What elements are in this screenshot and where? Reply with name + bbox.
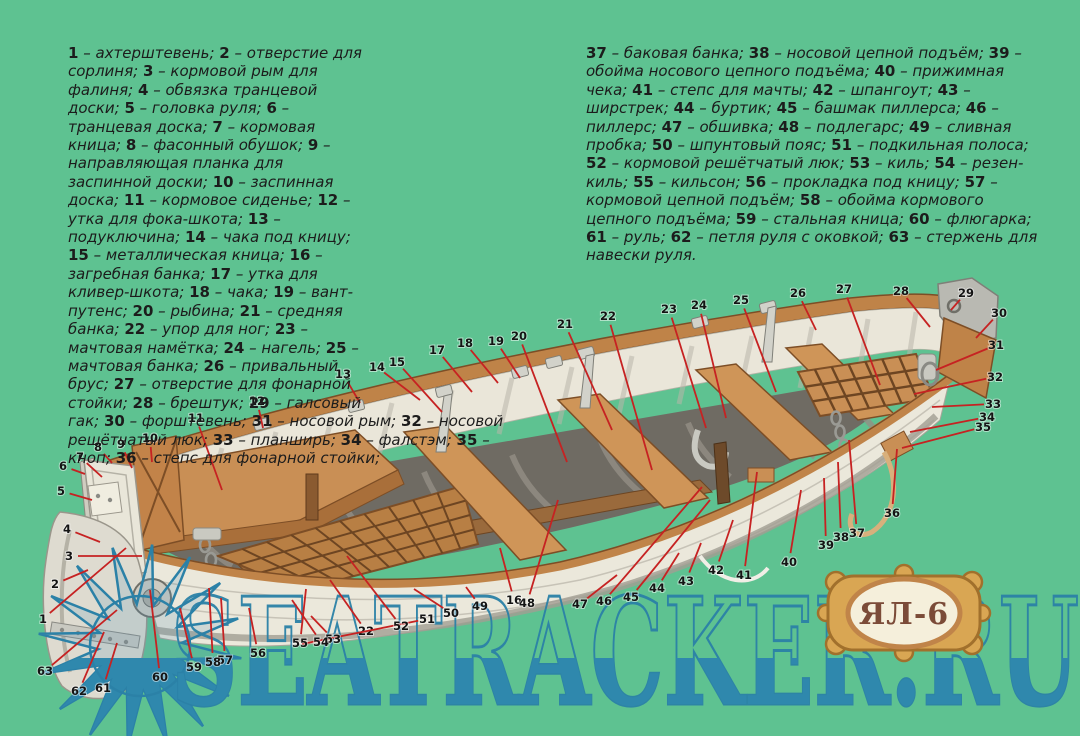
badge: ЯЛ-6 (818, 565, 990, 661)
legend-item-number: 23 (275, 320, 296, 338)
callout-number: 4 (63, 522, 71, 536)
callout-number: 35 (975, 420, 991, 434)
legend-item-number: 4 (138, 81, 148, 99)
callout-number: 22 (600, 309, 616, 323)
legend-item-number: 44 (674, 99, 695, 117)
callout-number: 39 (818, 538, 834, 552)
legend-item-number: 2 (219, 44, 229, 62)
legend-item-number: 18 (189, 283, 210, 301)
legend-item-number: 7 (212, 118, 222, 136)
callout-number: 54 (313, 635, 329, 649)
legend-item-number: 57 (965, 173, 986, 191)
legend-item-number: 32 (401, 412, 422, 430)
legend-item-number: 62 (671, 228, 692, 246)
legend-column-2: 37 – баковая банка; 38 – носовой цепной … (586, 44, 1048, 265)
legend-item-number: 38 (749, 44, 770, 62)
legend-item-number: 28 (133, 394, 154, 412)
callout-number: 26 (790, 286, 806, 300)
legend-item-number: 17 (210, 265, 231, 283)
legend-item-number: 11 (124, 191, 145, 209)
legend-item-number: 31 (252, 412, 273, 430)
legend-item-number: 63 (888, 228, 909, 246)
callout-number: 28 (893, 284, 909, 298)
callout-number: 50 (443, 606, 459, 620)
callout-number: 60 (152, 670, 168, 684)
legend-item-number: 39 (989, 44, 1010, 62)
callout-number: 58 (205, 655, 221, 669)
callout-number: 48 (519, 596, 535, 610)
legend-item-number: 51 (831, 136, 852, 154)
callout-number: 1 (39, 612, 47, 626)
legend-item-number: 20 (133, 302, 154, 320)
legend-item-number: 13 (248, 210, 269, 228)
callout-number: 29 (958, 286, 974, 300)
callout-number: 59 (186, 660, 202, 674)
legend-item-number: 40 (874, 62, 895, 80)
legend-item-number: 50 (652, 136, 673, 154)
legend-item-number: 14 (185, 228, 206, 246)
stern-pillar (306, 474, 318, 520)
legend-item-number: 59 (736, 210, 757, 228)
legend-item-number: 48 (778, 118, 799, 136)
legend-item-number: 53 (849, 154, 870, 172)
legend-item-number: 60 (909, 210, 930, 228)
chain-plate (193, 528, 221, 540)
legend-item-number: 55 (633, 173, 654, 191)
callout-number: 43 (678, 574, 694, 588)
callout-number: 36 (884, 506, 900, 520)
callout-number: 24 (691, 298, 707, 312)
callout-number: 33 (985, 397, 1001, 411)
legend-item-number: 16 (290, 246, 311, 264)
legend-item-number: 3 (143, 62, 153, 80)
callout-number: 52 (393, 619, 409, 633)
rudder-head-bolt-2 (108, 498, 112, 502)
callout-number: 63 (37, 664, 53, 678)
callout-number: 55 (292, 636, 308, 650)
callout-number: 31 (988, 338, 1004, 352)
callout-number: 49 (472, 599, 488, 613)
callout-number: 27 (836, 282, 852, 296)
legend-item-number: 33 (213, 431, 234, 449)
legend-item-number: 24 (223, 339, 244, 357)
callout-number: 44 (649, 581, 665, 595)
legend-item-number: 41 (632, 81, 653, 99)
legend-item-number: 35 (457, 431, 478, 449)
legend-item-number: 47 (662, 118, 683, 136)
legend-item-number: 58 (800, 191, 821, 209)
callout-number: 42 (708, 563, 724, 577)
legend-item-number: 21 (240, 302, 261, 320)
callout-number: 38 (833, 530, 849, 544)
callout-number: 62 (71, 684, 87, 698)
callout-number: 6 (59, 459, 67, 473)
legend-item-number: 22 (124, 320, 145, 338)
legend-item-number: 30 (104, 412, 125, 430)
legend-column-1: 1 – ахтерштевень; 2 – отверстие для сорл… (68, 44, 536, 467)
callout-number: 30 (991, 306, 1007, 320)
legend-item-number: 56 (745, 173, 766, 191)
rudder-head-bolt-1 (96, 494, 100, 498)
legend-item-number: 9 (308, 136, 318, 154)
legend-item-number: 54 (934, 154, 955, 172)
callout-number: 47 (572, 597, 588, 611)
callout-number: 25 (733, 293, 749, 307)
legend-item-number: 8 (126, 136, 136, 154)
callout-number: 5 (57, 484, 65, 498)
legend-item-number: 61 (586, 228, 607, 246)
legend-item-number: 37 (586, 44, 607, 62)
legend-item-number: 29 (249, 394, 270, 412)
callout-number: 40 (781, 555, 797, 569)
legend-item-number: 46 (966, 99, 987, 117)
mast-step (748, 468, 774, 482)
badge-text: ЯЛ-6 (859, 597, 949, 632)
page: 1 – ахтерштевень; 2 – отверстие для сорл… (0, 0, 1080, 736)
callout-number: 32 (987, 370, 1003, 384)
legend-item-number: 1 (68, 44, 78, 62)
legend-item-number: 10 (213, 173, 234, 191)
legend-item-number: 42 (813, 81, 834, 99)
callout-number: 56 (250, 646, 266, 660)
rudder-head (88, 482, 122, 516)
legend-text-wrap-notch (366, 284, 536, 404)
callout-number: 23 (661, 302, 677, 316)
callout-number: 51 (419, 612, 435, 626)
legend-item-number: 12 (317, 191, 338, 209)
legend-item-number: 6 (266, 99, 276, 117)
legend-item-number: 27 (114, 375, 135, 393)
legend-item-number: 5 (124, 99, 134, 117)
callout-number: 46 (596, 594, 612, 608)
legend-item-number: 19 (273, 283, 294, 301)
legend-item-number: 36 (116, 449, 137, 467)
callout-number: 61 (95, 681, 111, 695)
callout-number: 3 (65, 549, 73, 563)
callout-number: 41 (736, 568, 752, 582)
legend-item-number: 43 (938, 81, 959, 99)
legend-item-number: 49 (909, 118, 930, 136)
legend-item-number: 15 (68, 246, 89, 264)
legend-item-number: 25 (326, 339, 347, 357)
legend-item-number: 45 (777, 99, 798, 117)
callout-number: 37 (849, 526, 865, 540)
callout-number: 21 (557, 317, 573, 331)
callout-number: 45 (623, 590, 639, 604)
callout-number: 2 (51, 577, 59, 591)
legend-item-number: 26 (203, 357, 224, 375)
legend-item-number: 34 (341, 431, 362, 449)
legend-item-number: 52 (586, 154, 607, 172)
